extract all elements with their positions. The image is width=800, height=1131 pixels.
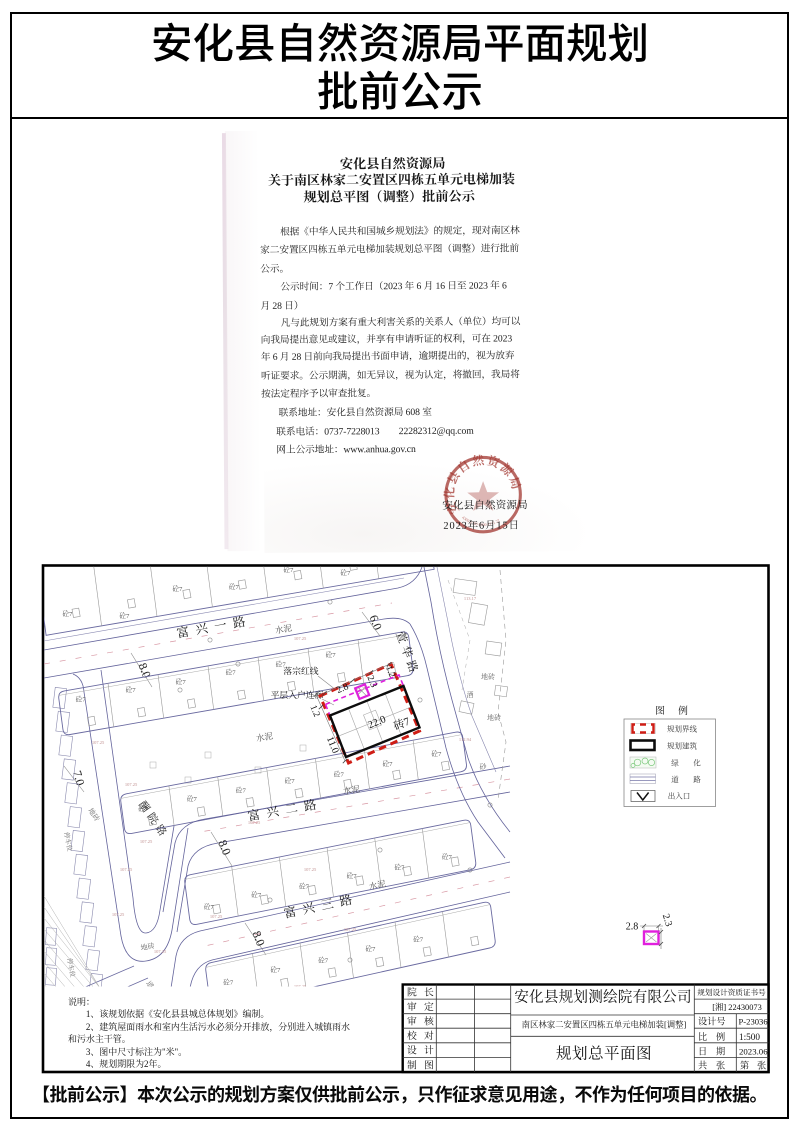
svg-text:规划设计资质证书号: 规划设计资质证书号: [697, 987, 766, 997]
svg-text:规划总平面图: 规划总平面图: [556, 1045, 652, 1063]
svg-text:长: 长: [424, 986, 434, 998]
svg-text:例: 例: [716, 1031, 725, 1042]
svg-text:设: 设: [407, 1045, 417, 1057]
svg-text:定: 定: [424, 1001, 434, 1013]
svg-text:审: 审: [407, 1000, 417, 1013]
svg-text:1:500: 1:500: [739, 1032, 760, 1042]
svg-text:张: 张: [716, 1060, 725, 1070]
svg-text:校: 校: [407, 1029, 417, 1042]
svg-text:期: 期: [716, 1045, 725, 1056]
svg-text:比: 比: [698, 1031, 707, 1042]
svg-text:南区林家二安置区四栋五单元电梯加装[调整]: 南区林家二安置区四栋五单元电梯加装[调整]: [522, 1020, 687, 1030]
svg-text:图: 图: [424, 1059, 434, 1071]
svg-text:日: 日: [698, 1046, 707, 1056]
svg-text:第: 第: [740, 1059, 749, 1070]
svg-text:审: 审: [407, 1015, 417, 1028]
svg-text:对: 对: [424, 1029, 434, 1042]
svg-text:P-23036: P-23036: [739, 1016, 769, 1026]
svg-text:安化县规划测绘院有限公司: 安化县规划测绘院有限公司: [514, 989, 692, 1006]
svg-text:计: 计: [424, 1044, 434, 1057]
svg-text:制: 制: [407, 1058, 417, 1071]
svg-text:[湘] 22430073: [湘] 22430073: [712, 1002, 762, 1012]
svg-text:2023.06: 2023.06: [739, 1046, 768, 1056]
svg-text:张: 张: [757, 1060, 766, 1070]
svg-text:院: 院: [407, 985, 417, 998]
svg-text:核: 核: [424, 1015, 435, 1028]
svg-text:共: 共: [698, 1059, 707, 1070]
svg-text:设计号: 设计号: [698, 1015, 726, 1026]
